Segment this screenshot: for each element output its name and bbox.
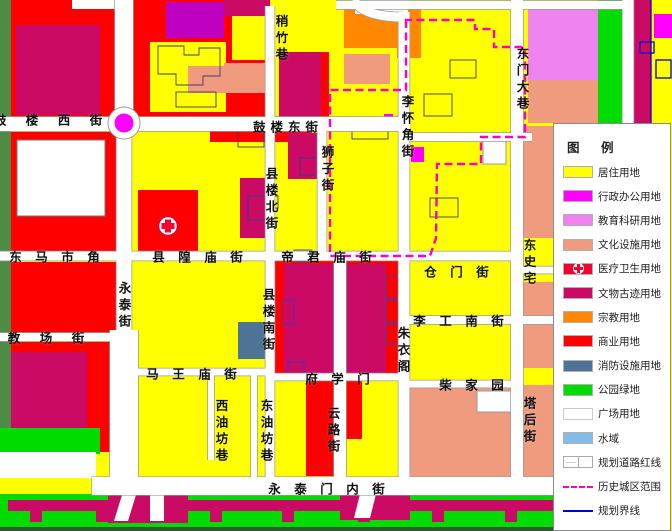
culture-swatch: [563, 239, 593, 251]
park-swatch: [563, 384, 593, 396]
legend-row-heritage: 文物古迹用地: [554, 281, 670, 305]
commercial-swatch: [563, 335, 593, 347]
hospital-icon: [159, 217, 178, 236]
historic-boundary-icon: [563, 486, 593, 488]
planning-map-page: 鼓 楼 西 街 鼓楼东街 朝 阳 街 稍竹巷 东门大巷 李怀角街 狮子街 县楼北…: [0, 0, 672, 531]
medical-cross-icon: [563, 263, 593, 275]
planning-boundary-icon: [563, 510, 593, 512]
legend-row-culture: 文化设施用地: [554, 233, 670, 257]
residential-swatch: [563, 166, 593, 178]
education-swatch: [563, 214, 593, 226]
legend-row-boundary: 规划界线: [554, 499, 670, 523]
water-swatch: [563, 432, 593, 444]
legend-row-fire: 消防设施用地: [554, 354, 670, 378]
legend-row-historic: 历史城区范围: [554, 474, 670, 498]
legend-row-plaza: 广场用地: [554, 402, 670, 426]
legend-row-commercial: 商业用地: [554, 329, 670, 353]
legend-title: 图 例: [567, 137, 670, 156]
plaza-swatch: [563, 408, 593, 420]
legend-row-religion: 宗教用地: [554, 305, 670, 329]
legend-row-park: 公园绿地: [554, 378, 670, 402]
road-redline-icon: [563, 456, 593, 468]
legend-row-road-redline: 规划道路红线: [554, 450, 670, 474]
religion-swatch: [563, 311, 593, 323]
roundabout: [108, 107, 140, 139]
fire-swatch: [563, 360, 593, 372]
admin-swatch: [563, 190, 593, 202]
legend-panel: 图 例 居住用地 行政办公用地 教育科研用地 文化设施用地 医疗卫生用地 文物古…: [553, 123, 671, 531]
legend-row-water: 水域: [554, 426, 670, 450]
legend-row-medical: 医疗卫生用地: [554, 257, 670, 281]
legend-row-education: 教育科研用地: [554, 208, 670, 232]
legend-row-admin: 行政办公用地: [554, 184, 670, 208]
legend-row-residential: 居住用地: [554, 160, 670, 184]
heritage-swatch: [563, 287, 593, 299]
